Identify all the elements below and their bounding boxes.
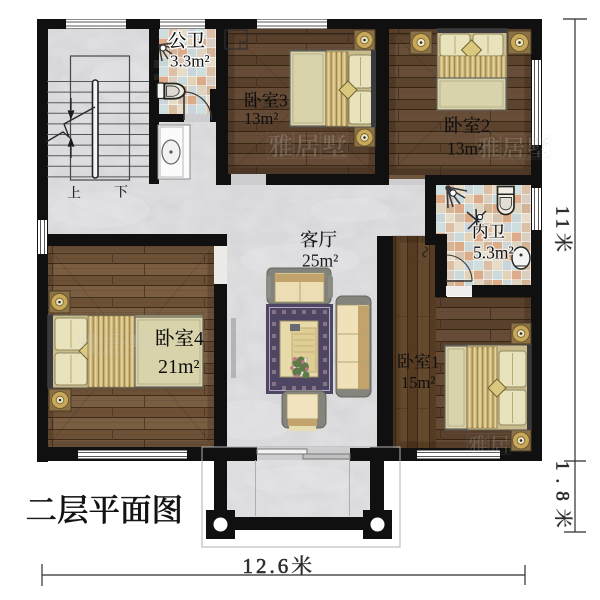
svg-text:21m²: 21m² — [158, 356, 200, 378]
svg-text:2: 2 — [481, 117, 490, 137]
svg-text:11: 11 — [552, 206, 573, 232]
svg-text:13m²: 13m² — [447, 139, 483, 159]
svg-text:4: 4 — [194, 329, 204, 350]
svg-text:3.3m²: 3.3m² — [170, 52, 210, 71]
svg-text:12.6: 12.6 — [243, 554, 292, 578]
svg-text:1: 1 — [431, 353, 440, 372]
svg-text:3: 3 — [279, 91, 288, 111]
svg-text:25m²: 25m² — [302, 251, 338, 271]
svg-text:1.8: 1.8 — [552, 461, 573, 509]
svg-text:13m²: 13m² — [244, 109, 278, 128]
svg-text:15m²: 15m² — [401, 373, 435, 392]
svg-text:5.3m²: 5.3m² — [473, 243, 514, 263]
